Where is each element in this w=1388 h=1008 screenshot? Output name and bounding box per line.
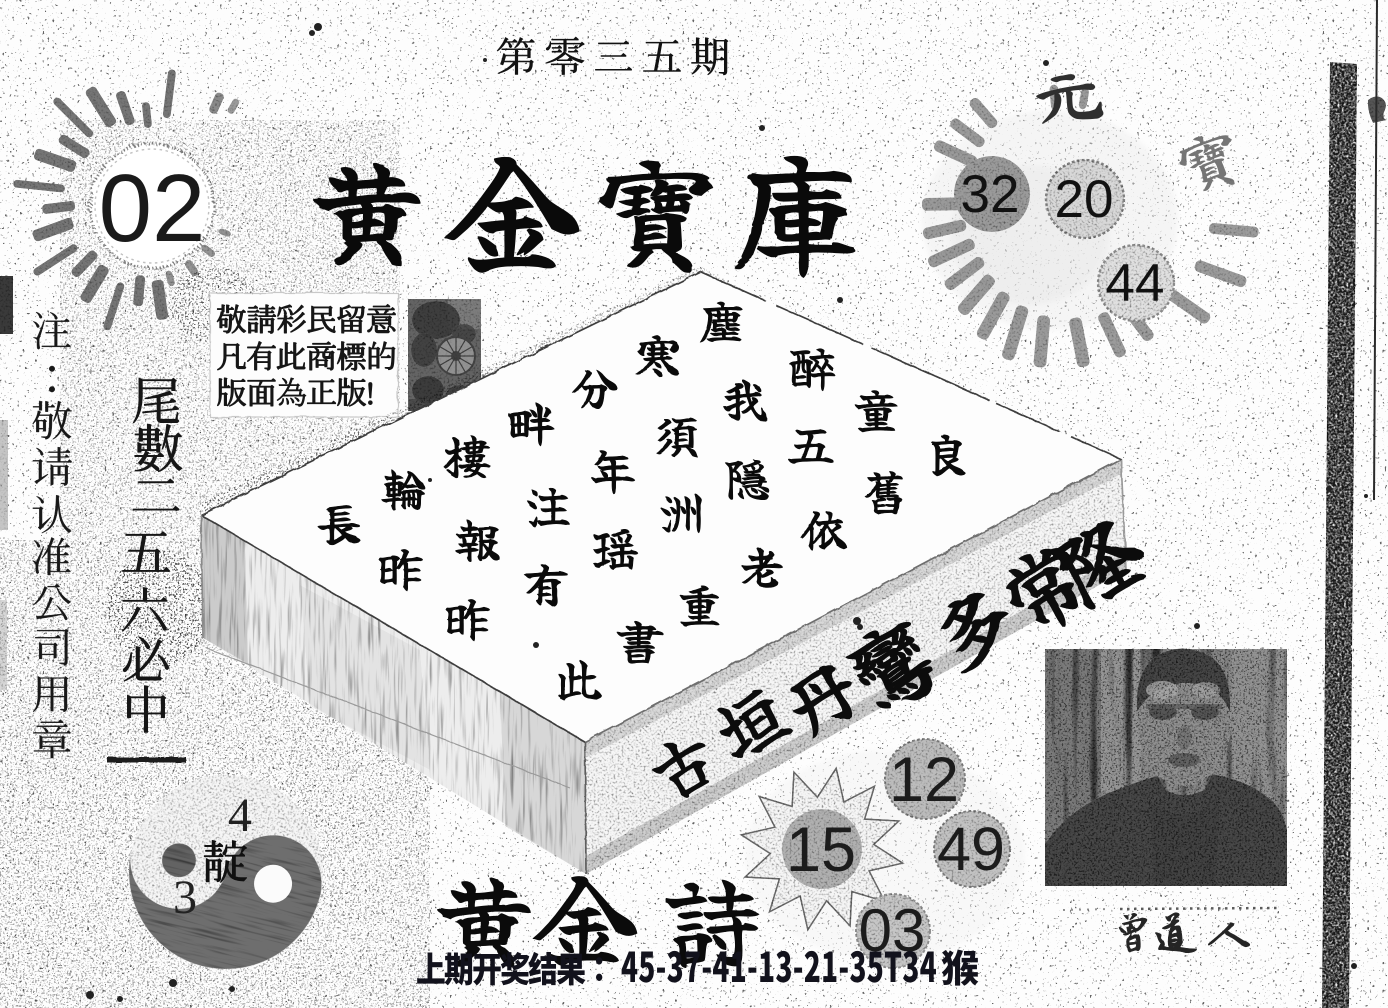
svg-text:20: 20 <box>1055 170 1114 229</box>
svg-text:12: 12 <box>889 745 959 815</box>
svg-text:15: 15 <box>786 815 856 885</box>
svg-text:44: 44 <box>1106 254 1165 313</box>
svg-text:49: 49 <box>937 815 1005 883</box>
svg-text:32: 32 <box>961 165 1020 224</box>
svg-text:4: 4 <box>228 789 252 842</box>
svg-text:3: 3 <box>173 871 197 924</box>
svg-text:02: 02 <box>99 155 206 262</box>
